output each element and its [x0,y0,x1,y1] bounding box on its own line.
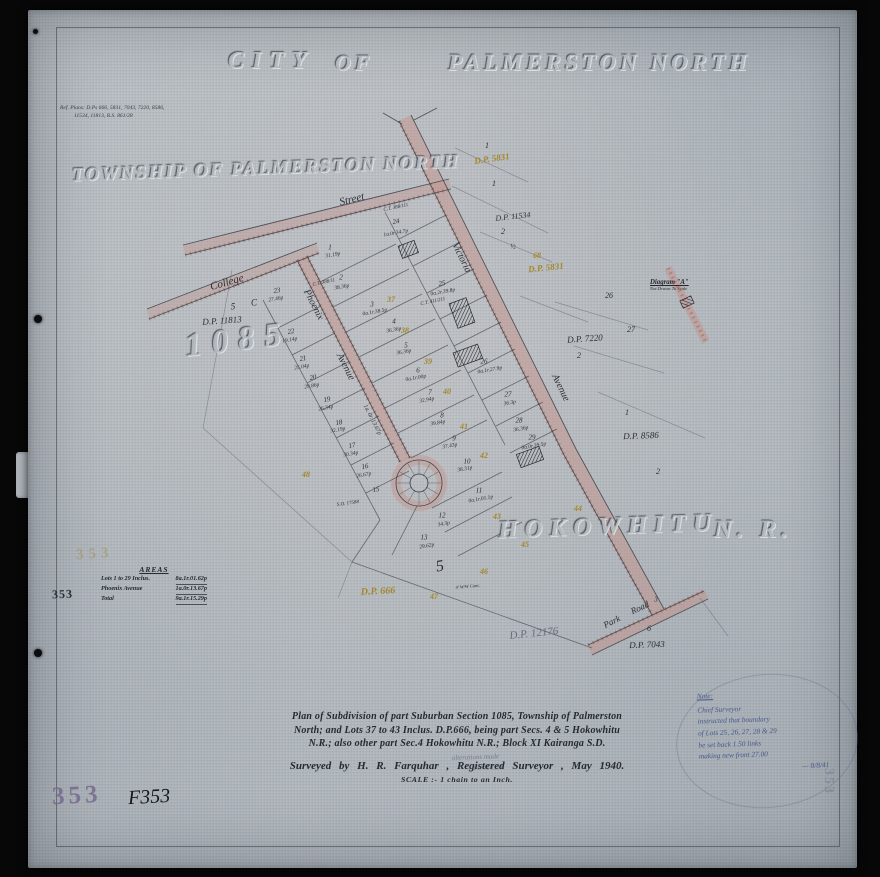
scanned-survey-plan: CITY OF PALMERSTON NORTH TOWNSHIP OF PAL… [0,0,880,877]
map-label: 1a. 0r. 13.67p [362,404,382,436]
map-label: 19.14p [282,337,298,345]
map-label: Victoria [449,241,472,274]
scale-statement: SCALE :- 1 chain to an Inch. [268,775,646,784]
map-label: 12 [439,513,446,520]
map-label: Road [629,600,650,616]
map-label: 6 [416,368,420,375]
map-label: 39.84p [430,420,446,428]
pencil-amendment-note: alterations made 18/1/41 L.M. [452,751,505,775]
map-label: 34.3p [437,521,450,529]
handwritten-note: Note: Chief Surveyorinstructed that boun… [697,685,850,775]
map-label: S.O. 17588 [337,500,360,508]
map-label: 45 [521,541,529,549]
map-label: 1a.0r.34.7p [383,229,408,239]
map-label: 29.86p [304,383,320,391]
areas-row-value: 9a.1r.15.29p [176,595,207,605]
map-label: 1 [485,142,489,150]
map-label: D.P. 11534 [495,211,531,223]
map-label: 68 [533,252,541,260]
map-label: 2 [339,275,343,282]
areas-row-label: Total [101,595,114,605]
map-label: 16 [361,463,369,471]
map-label: 26 [481,359,488,366]
map-label: 3 [654,597,658,604]
map-label: 4 [392,319,396,326]
map-label: 5 [231,303,236,312]
map-label: 37.43p [442,443,458,451]
map-label: 44 [574,505,582,513]
map-label: 37 [387,296,395,304]
map-label: 1 [492,180,496,188]
map-label: 0a.0r.39.5p [521,442,546,452]
map-label: 32.19p [330,427,346,435]
map-label: 29 [529,435,536,442]
map-label: 21 [299,355,307,363]
map-label: 40 [443,388,451,396]
map-label: 30.34p [343,451,359,459]
map-label: College [209,273,245,293]
map-label: Phoenix [301,288,325,322]
areas-row: Total9a.1r.15.29p [101,595,207,605]
map-label: 2 [656,468,660,476]
map-label: 36.36p [386,327,402,335]
map-label: 23 [273,287,281,295]
map-label: 26 [605,292,613,300]
map-label: 19 [323,396,331,404]
map-label: 46 [480,568,488,576]
map-label: 27 [505,392,512,399]
map-label: D.P. 11813 [202,315,242,327]
map-label: 3 [370,302,374,309]
map-label: D.P. 5831 [528,262,564,275]
purple-stamp-353: 353 [51,781,102,812]
areas-row: Phoenix Avenue1a.0r.13.67p [101,585,207,595]
map-label: 26.67p [356,472,372,480]
map-label: 32.94p [419,397,435,405]
map-label: D.P. 7220 [567,333,603,344]
map-label: 2 [501,228,505,236]
map-label: 24 [392,218,400,226]
faint-gold-stamp-353: 353 [76,545,114,564]
map-label: C.T. 388/11 [312,278,336,288]
map-label: 0a.1r.38.5p [362,308,387,318]
map-label: D.P. 12176 [509,626,559,642]
map-label: 22 [287,328,295,336]
map-label: D.P. 8586 [623,431,659,441]
areas-title: AREAS [101,565,207,574]
map-label: 41 [460,423,468,431]
title-block-line1: Plan of Subdivision of part Suburban Sec… [268,710,646,724]
map-label: 20 [309,374,317,382]
map-label: 0a.1r.27.9p [477,366,502,376]
map-label: D.P. 7043 [629,640,665,650]
map-label: 39 [424,358,432,366]
map-label: 47 [430,593,438,601]
map-label: 1 [625,409,629,417]
map-label: 31.19p [325,252,341,260]
map-label: D.P. 666 [360,586,395,598]
title-block-line3: N.R.; also other part Sec.4 Hokowhitu N.… [268,737,646,751]
map-label: Street [338,192,365,209]
areas-row-value: 1a.0r.13.67p [176,585,207,595]
title-block-line2: North; and Lots 37 to 43 Inclus. D.P.666… [268,724,646,738]
map-label: C.T. 388/111 [383,203,409,213]
note-lines: Chief Surveyorinstructed that boundaryof… [697,699,849,763]
map-label: 27 [627,326,635,334]
map-label: 38 [401,327,409,335]
map-label: 43 [493,513,501,521]
map-label: 4' W/W Conc. [455,584,480,591]
map-label: Avenue [549,373,571,403]
areas-row: Lots 1 to 29 Inclus.8a.1r.01.62p [101,575,207,585]
map-label: 27.46p [268,296,284,304]
areas-rows: Lots 1 to 29 Inclus.8a.1r.01.62pPhoenix … [101,575,207,605]
map-label: 36.3p [503,400,516,408]
map-label: 25 [438,280,446,288]
areas-row-value: 8a.1r.01.62p [176,575,207,585]
map-label: 29.62p [419,543,435,551]
map-label: 38.31p [457,466,473,474]
margin-number-353: 353 [52,587,74,603]
map-label: ½ [510,244,515,251]
map-label: 1 [328,245,332,252]
map-label: 36.36p [513,426,529,434]
areas-row-label: Phoenix Avenue [101,585,142,595]
areas-row-label: Lots 1 to 29 Inclus. [101,575,150,585]
map-label: 11 [476,488,482,495]
map-label: C [251,299,257,308]
edge-bleed-stamp-353: 353 [820,768,836,795]
map-label: 2 [577,352,581,360]
map-label: 13 [421,535,428,542]
map-label: D.P. 5831 [474,152,510,166]
map-label: 6 [647,625,651,633]
map-label: 15 [372,486,380,494]
areas-schedule: AREAS Lots 1 to 29 Inclus.8a.1r.01.62pPh… [101,565,207,605]
map-label: Avenue [334,352,356,382]
map-label: 42 [480,452,488,460]
ink-file-number-f353: F353 [127,785,170,810]
map-label: 0a.1r.00p [405,374,426,383]
map-label: 38.36p [334,284,350,292]
map-label: 26.34p [318,405,334,413]
map-label: C.T. 411/211 [420,297,446,307]
map-label: 17 [348,442,356,450]
map-label: 0a.1r.01.1p [468,495,493,505]
map-label: Park [602,614,622,630]
map-label: 25.04p [294,364,310,372]
map-label: 36.36p [396,349,412,357]
map-label: 48 [302,471,310,479]
map-label: 28 [516,418,523,425]
map-label: 5 [435,558,446,575]
pencil-note-line2: 18/1/41 L.M. [468,762,505,774]
